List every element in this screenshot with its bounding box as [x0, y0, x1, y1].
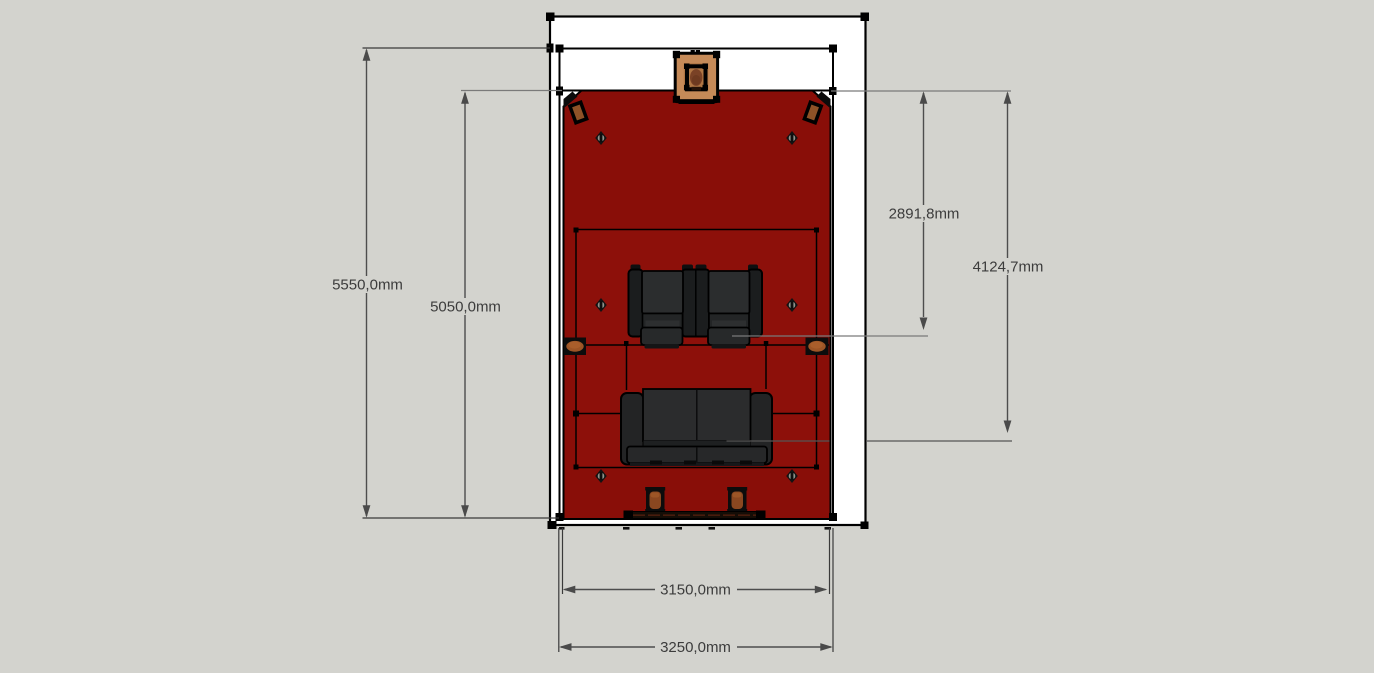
svg-text:3250,0mm: 3250,0mm [660, 639, 731, 656]
svg-text:5550,0mm: 5550,0mm [332, 277, 403, 294]
svg-text:4124,7mm: 4124,7mm [973, 259, 1044, 276]
svg-text:5050,0mm: 5050,0mm [430, 299, 501, 316]
svg-text:2891,8mm: 2891,8mm [889, 206, 960, 223]
svg-text:3150,0mm: 3150,0mm [660, 582, 731, 599]
